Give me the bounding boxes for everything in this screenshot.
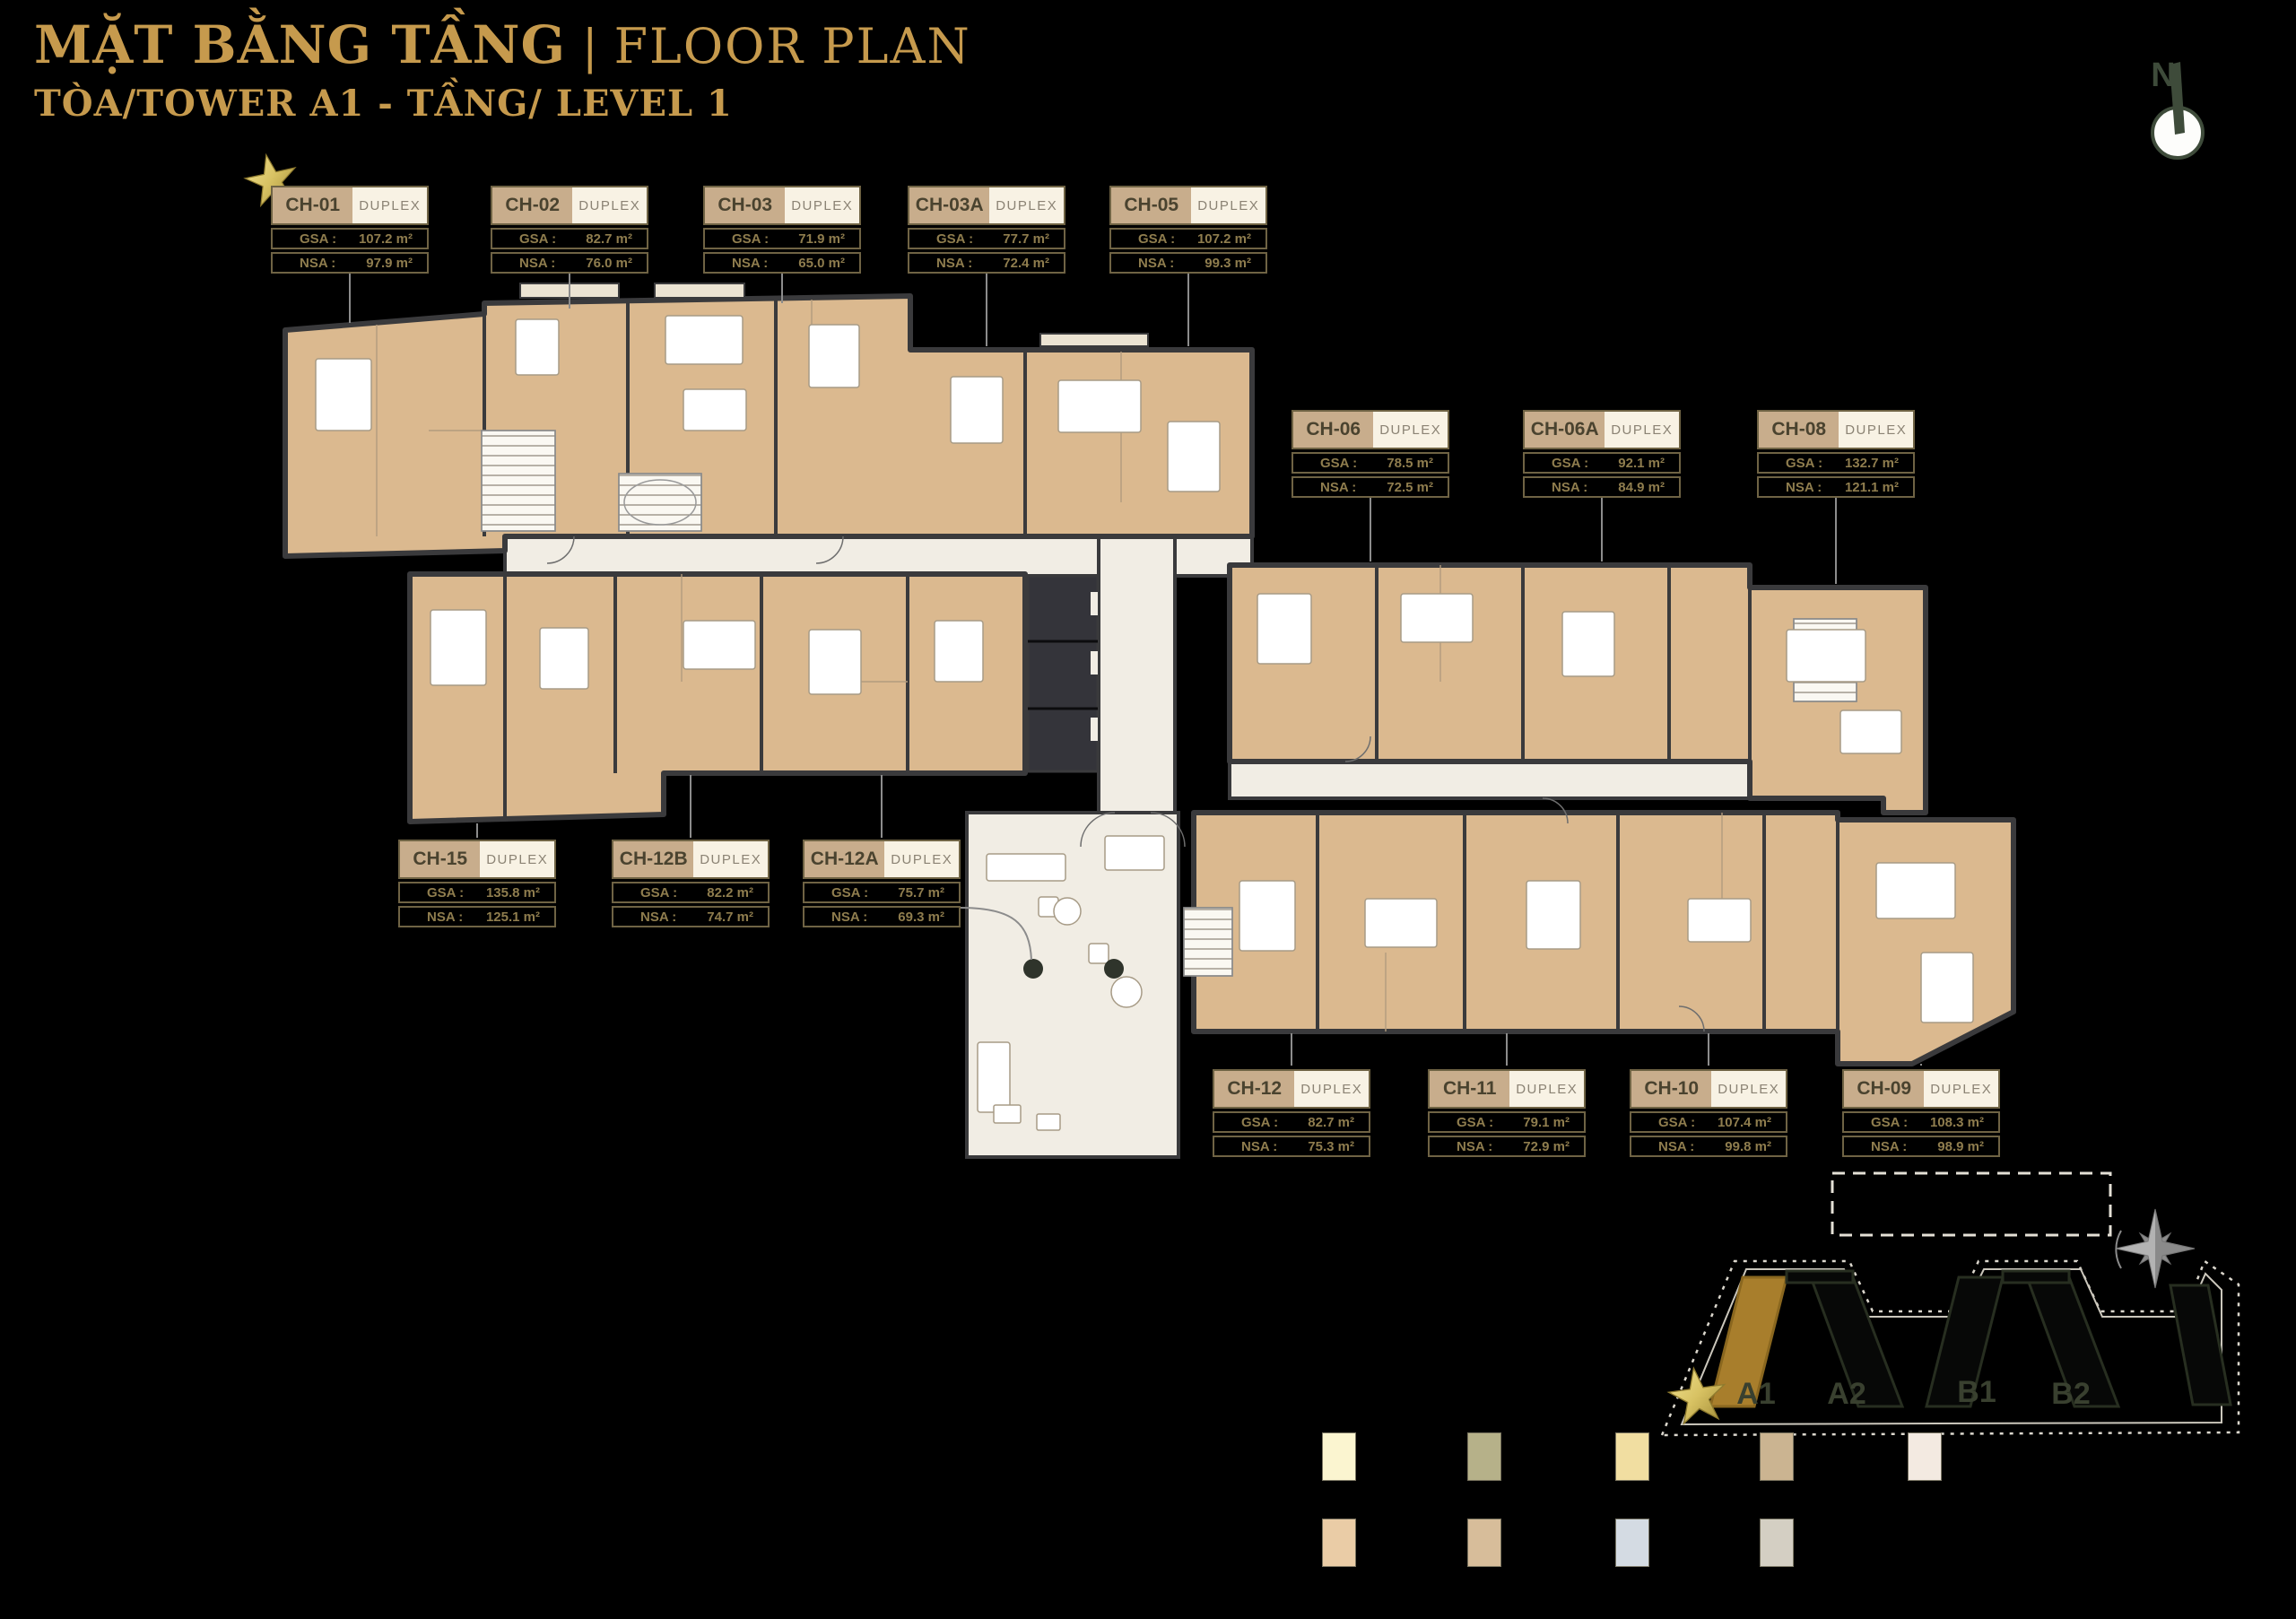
unit-id: CH-10 xyxy=(1631,1071,1711,1107)
gsa-row-label: GSA : xyxy=(1138,231,1175,247)
gsa-row-value: 92.1 m² xyxy=(1618,456,1665,471)
nsa-row-value: 74.7 m² xyxy=(707,910,753,925)
nsa-row: NSA :75.3 m² xyxy=(1213,1136,1370,1157)
unit-id: CH-12 xyxy=(1214,1071,1294,1107)
gsa-row-value: 82.2 m² xyxy=(707,885,753,901)
unit-label-header: CH-03ADUPLEX xyxy=(908,186,1065,225)
nsa-row: NSA :72.9 m² xyxy=(1428,1136,1586,1157)
nsa-row-value: 97.9 m² xyxy=(366,256,413,271)
gsa-row-value: 107.2 m² xyxy=(1197,231,1251,247)
tower-label-a2: A2 xyxy=(1827,1377,1865,1411)
gsa-row-label: GSA : xyxy=(519,231,556,247)
legend-swatch-r2-3 xyxy=(1615,1519,1649,1567)
nsa-row-label: NSA : xyxy=(519,256,555,271)
unit-label-header: CH-12BDUPLEX xyxy=(612,840,770,879)
nsa-row: NSA :72.4 m² xyxy=(908,252,1065,274)
unit-label-CH-10: CH-10DUPLEXGSA :107.4 m²NSA :99.8 m² xyxy=(1630,1069,1787,1157)
nsa-row-label: NSA : xyxy=(1658,1139,1694,1154)
nsa-row-label: NSA : xyxy=(732,256,768,271)
unit-label-header: CH-06ADUPLEX xyxy=(1523,410,1681,449)
unit-label-header: CH-09DUPLEX xyxy=(1842,1069,2000,1109)
unit-label-CH-02: CH-02DUPLEXGSA :82.7 m²NSA :76.0 m² xyxy=(491,186,648,274)
gsa-row: GSA :77.7 m² xyxy=(908,228,1065,249)
elevator-core xyxy=(1028,576,1098,771)
unit-label-CH-03A: CH-03ADUPLEXGSA :77.7 m²NSA :72.4 m² xyxy=(908,186,1065,274)
nsa-row-value: 98.9 m² xyxy=(1937,1139,1984,1154)
page-title-vi: MẶT BẰNG TẦNG xyxy=(34,14,566,75)
unit-id: CH-11 xyxy=(1430,1071,1509,1107)
nsa-row-label: NSA : xyxy=(1457,1139,1492,1154)
gsa-row-label: GSA : xyxy=(1457,1115,1493,1130)
nsa-row-value: 99.8 m² xyxy=(1725,1139,1771,1154)
gsa-row-value: 82.7 m² xyxy=(1308,1115,1354,1130)
north-indicator: N xyxy=(2151,57,2203,158)
nsa-row-value: 99.3 m² xyxy=(1205,256,1251,271)
gsa-row: GSA :135.8 m² xyxy=(398,882,556,903)
gsa-row: GSA :107.4 m² xyxy=(1630,1111,1787,1133)
legend-swatch-r2-1 xyxy=(1322,1519,1356,1567)
header: MẶT BẰNG TẦNG | FLOOR PLAN TÒA/TOWER A1 … xyxy=(34,14,971,125)
unit-label-header: CH-05DUPLEX xyxy=(1109,186,1267,225)
site-plan-dashed-box xyxy=(1832,1173,2110,1235)
tower-label-a1: A1 xyxy=(1736,1377,1775,1411)
unit-id: CH-06 xyxy=(1293,412,1373,448)
gsa-row-value: 78.5 m² xyxy=(1387,456,1433,471)
unit-id: CH-06A xyxy=(1525,412,1605,448)
nsa-row: NSA :72.5 m² xyxy=(1291,476,1449,498)
gsa-row-value: 79.1 m² xyxy=(1523,1115,1570,1130)
gsa-row-label: GSA : xyxy=(936,231,973,247)
unit-id: CH-02 xyxy=(492,187,572,223)
legend-swatch-r1-3 xyxy=(1615,1432,1649,1481)
unit-label-header: CH-15DUPLEX xyxy=(398,840,556,879)
wing-middle-left xyxy=(410,574,1025,822)
unit-label-CH-06A: CH-06ADUPLEXGSA :92.1 m²NSA :84.9 m² xyxy=(1523,410,1681,498)
nsa-row: NSA :99.8 m² xyxy=(1630,1136,1787,1157)
unit-label-header: CH-12DUPLEX xyxy=(1213,1069,1370,1109)
nsa-row-label: NSA : xyxy=(427,910,463,925)
nsa-row-label: NSA : xyxy=(1241,1139,1277,1154)
gsa-row: GSA :78.5 m² xyxy=(1291,452,1449,474)
gsa-row: GSA :92.1 m² xyxy=(1523,452,1681,474)
nsa-row-value: 121.1 m² xyxy=(1845,480,1899,495)
unit-type: DUPLEX xyxy=(884,841,959,877)
nsa-row-value: 125.1 m² xyxy=(486,910,540,925)
gsa-row-value: 108.3 m² xyxy=(1930,1115,1984,1130)
unit-label-CH-05: CH-05DUPLEXGSA :107.2 m²NSA :99.3 m² xyxy=(1109,186,1267,274)
nsa-row: NSA :76.0 m² xyxy=(491,252,648,274)
gsa-row-value: 75.7 m² xyxy=(898,885,944,901)
nsa-row-value: 72.9 m² xyxy=(1523,1139,1570,1154)
nsa-row-label: NSA : xyxy=(1320,480,1356,495)
gsa-row-label: GSA : xyxy=(1552,456,1588,471)
compass-rose-icon xyxy=(2116,1209,2195,1288)
page-title: MẶT BẰNG TẦNG | FLOOR PLAN xyxy=(34,14,971,75)
tower-label-b1: B1 xyxy=(1957,1375,1996,1409)
gsa-row-value: 82.7 m² xyxy=(586,231,632,247)
unit-label-CH-12: CH-12DUPLEXGSA :82.7 m²NSA :75.3 m² xyxy=(1213,1069,1370,1157)
unit-label-header: CH-12ADUPLEX xyxy=(803,840,961,879)
nsa-row: NSA :74.7 m² xyxy=(612,906,770,927)
gsa-row-value: 135.8 m² xyxy=(486,885,540,901)
legend-swatch-r2-2 xyxy=(1467,1519,1501,1567)
nsa-row-value: 76.0 m² xyxy=(586,256,632,271)
nsa-row-value: 72.5 m² xyxy=(1387,480,1433,495)
nsa-row: NSA :98.9 m² xyxy=(1842,1136,2000,1157)
nsa-row-label: NSA : xyxy=(640,910,676,925)
nsa-row-value: 84.9 m² xyxy=(1618,480,1665,495)
legend-swatch-r1-2 xyxy=(1467,1432,1501,1481)
gsa-row: GSA :71.9 m² xyxy=(703,228,861,249)
nsa-row-value: 65.0 m² xyxy=(798,256,845,271)
nsa-row: NSA :99.3 m² xyxy=(1109,252,1267,274)
gsa-row-label: GSA : xyxy=(1871,1115,1908,1130)
unit-label-CH-12A: CH-12ADUPLEXGSA :75.7 m²NSA :69.3 m² xyxy=(803,840,961,927)
gsa-row-label: GSA : xyxy=(1658,1115,1695,1130)
unit-id: CH-03 xyxy=(705,187,785,223)
nsa-row-label: NSA : xyxy=(1786,480,1822,495)
legend-swatch-r1-5 xyxy=(1908,1432,1942,1481)
unit-label-CH-12B: CH-12BDUPLEXGSA :82.2 m²NSA :74.7 m² xyxy=(612,840,770,927)
gsa-row-value: 107.2 m² xyxy=(359,231,413,247)
nsa-row-value: 75.3 m² xyxy=(1308,1139,1354,1154)
gsa-row-value: 77.7 m² xyxy=(1003,231,1049,247)
nsa-row-value: 69.3 m² xyxy=(898,910,944,925)
unit-type: DUPLEX xyxy=(1509,1071,1584,1107)
legend-swatch-r2-4 xyxy=(1760,1519,1794,1567)
nsa-row-label: NSA : xyxy=(1871,1139,1907,1154)
unit-type: DUPLEX xyxy=(1924,1071,1998,1107)
nsa-row: NSA :121.1 m² xyxy=(1757,476,1915,498)
gsa-row: GSA :82.2 m² xyxy=(612,882,770,903)
page-subtitle: TÒA/TOWER A1 - TẦNG/ LEVEL 1 xyxy=(34,83,971,125)
unit-label-CH-03: CH-03DUPLEXGSA :71.9 m²NSA :65.0 m² xyxy=(703,186,861,274)
title-divider: | xyxy=(582,21,598,74)
unit-type: DUPLEX xyxy=(989,187,1064,223)
unit-type: DUPLEX xyxy=(572,187,647,223)
site-plan: A1 A2 B1 B2 xyxy=(1662,1173,2239,1435)
unit-id: CH-12A xyxy=(804,841,884,877)
nsa-row-label: NSA : xyxy=(831,910,867,925)
gsa-row: GSA :82.7 m² xyxy=(1213,1111,1370,1133)
site-tower-labels: A1 A2 B1 B2 xyxy=(1736,1375,2090,1411)
unit-label-CH-11: CH-11DUPLEXGSA :79.1 m²NSA :72.9 m² xyxy=(1428,1069,1586,1157)
unit-type: DUPLEX xyxy=(1373,412,1448,448)
nsa-row-label: NSA : xyxy=(1552,480,1587,495)
unit-type: DUPLEX xyxy=(1839,412,1913,448)
unit-label-CH-08: CH-08DUPLEXGSA :132.7 m²NSA :121.1 m² xyxy=(1757,410,1915,498)
gsa-row-label: GSA : xyxy=(640,885,677,901)
gsa-row-label: GSA : xyxy=(1320,456,1357,471)
gsa-row-value: 132.7 m² xyxy=(1845,456,1899,471)
unit-type: DUPLEX xyxy=(1191,187,1265,223)
unit-type: DUPLEX xyxy=(1711,1071,1786,1107)
nsa-row-label: NSA : xyxy=(936,256,972,271)
unit-id: CH-03A xyxy=(909,187,989,223)
gsa-row-label: GSA : xyxy=(1786,456,1822,471)
nsa-row-label: NSA : xyxy=(300,256,335,271)
nsa-row-label: NSA : xyxy=(1138,256,1174,271)
unit-type: DUPLEX xyxy=(352,187,427,223)
gsa-row-label: GSA : xyxy=(732,231,769,247)
unit-id: CH-09 xyxy=(1844,1071,1924,1107)
unit-type: DUPLEX xyxy=(693,841,768,877)
nsa-row: NSA :125.1 m² xyxy=(398,906,556,927)
gsa-row-label: GSA : xyxy=(427,885,464,901)
unit-type: DUPLEX xyxy=(785,187,859,223)
gsa-row: GSA :107.2 m² xyxy=(271,228,429,249)
gsa-row-value: 107.4 m² xyxy=(1718,1115,1771,1130)
gsa-row: GSA :79.1 m² xyxy=(1428,1111,1586,1133)
unit-label-header: CH-02DUPLEX xyxy=(491,186,648,225)
gsa-row-label: GSA : xyxy=(1241,1115,1278,1130)
unit-label-header: CH-08DUPLEX xyxy=(1757,410,1915,449)
corridor-right xyxy=(1230,762,1750,798)
unit-type: DUPLEX xyxy=(480,841,554,877)
legend-swatch-r1-4 xyxy=(1760,1432,1794,1481)
unit-type: DUPLEX xyxy=(1294,1071,1369,1107)
unit-id: CH-05 xyxy=(1111,187,1191,223)
gsa-row-value: 71.9 m² xyxy=(798,231,845,247)
unit-type: DUPLEX xyxy=(1605,412,1679,448)
gsa-row: GSA :107.2 m² xyxy=(1109,228,1267,249)
legend-swatch-r1-1 xyxy=(1322,1432,1356,1481)
gsa-row: GSA :82.7 m² xyxy=(491,228,648,249)
page-title-en: FLOOR PLAN xyxy=(614,18,971,74)
unit-label-CH-06: CH-06DUPLEXGSA :78.5 m²NSA :72.5 m² xyxy=(1291,410,1449,498)
unit-label-header: CH-11DUPLEX xyxy=(1428,1069,1586,1109)
unit-id: CH-01 xyxy=(273,187,352,223)
nsa-row: NSA :69.3 m² xyxy=(803,906,961,927)
unit-id: CH-15 xyxy=(400,841,480,877)
gsa-row: GSA :75.7 m² xyxy=(803,882,961,903)
corridor-vertical xyxy=(1099,536,1175,820)
unit-label-CH-09: CH-09DUPLEXGSA :108.3 m²NSA :98.9 m² xyxy=(1842,1069,2000,1157)
unit-label-header: CH-10DUPLEX xyxy=(1630,1069,1787,1109)
nsa-row: NSA :65.0 m² xyxy=(703,252,861,274)
unit-label-header: CH-03DUPLEX xyxy=(703,186,861,225)
gsa-row-label: GSA : xyxy=(831,885,868,901)
unit-id: CH-08 xyxy=(1759,412,1839,448)
nsa-row: NSA :97.9 m² xyxy=(271,252,429,274)
nsa-row: NSA :84.9 m² xyxy=(1523,476,1681,498)
gsa-row: GSA :108.3 m² xyxy=(1842,1111,2000,1133)
gsa-row: GSA :132.7 m² xyxy=(1757,452,1915,474)
unit-label-CH-15: CH-15DUPLEXGSA :135.8 m²NSA :125.1 m² xyxy=(398,840,556,927)
unit-id: CH-12B xyxy=(613,841,693,877)
unit-label-header: CH-06DUPLEX xyxy=(1291,410,1449,449)
gsa-row-label: GSA : xyxy=(300,231,336,247)
nsa-row-value: 72.4 m² xyxy=(1003,256,1049,271)
tower-label-b2: B2 xyxy=(2051,1377,2090,1411)
unit-label-header: CH-01DUPLEX xyxy=(271,186,429,225)
unit-label-CH-01: CH-01DUPLEXGSA :107.2 m²NSA :97.9 m² xyxy=(271,186,429,274)
